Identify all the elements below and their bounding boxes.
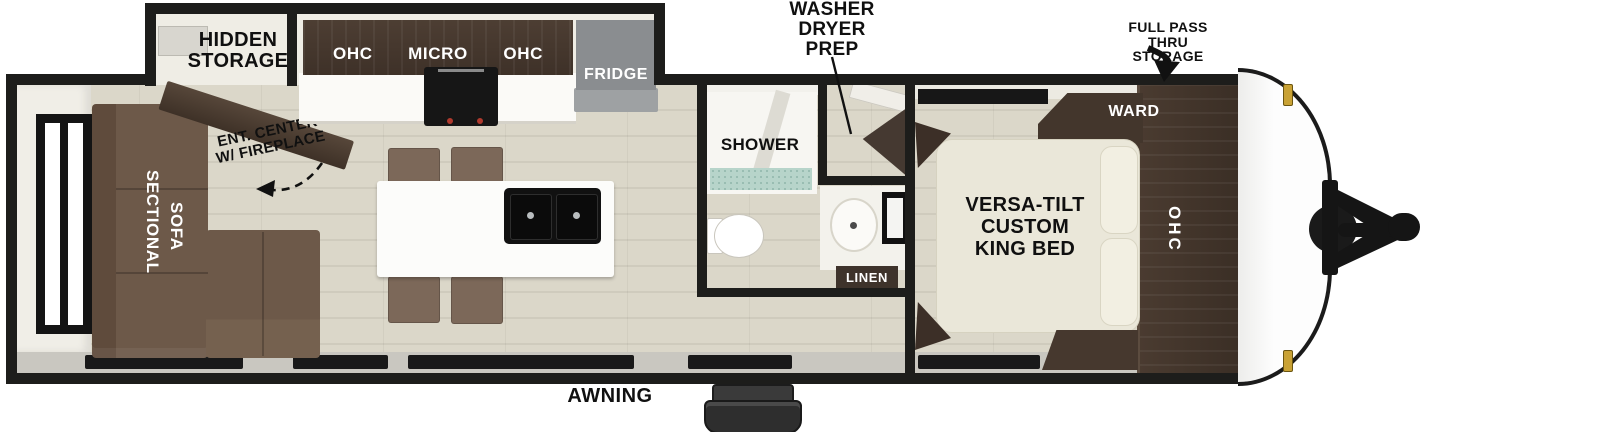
full-pass-arrow-icon: [1148, 48, 1180, 82]
plan-overlay: [0, 0, 1600, 432]
ent-center-arrow-icon: [256, 163, 322, 197]
trailer-hitch: [1309, 180, 1420, 275]
floorplan-canvas: SECTIONAL SOFA ENT. CENTER W/ FIREPLACE …: [0, 0, 1600, 432]
washer-prep-leader-line: [832, 57, 851, 134]
